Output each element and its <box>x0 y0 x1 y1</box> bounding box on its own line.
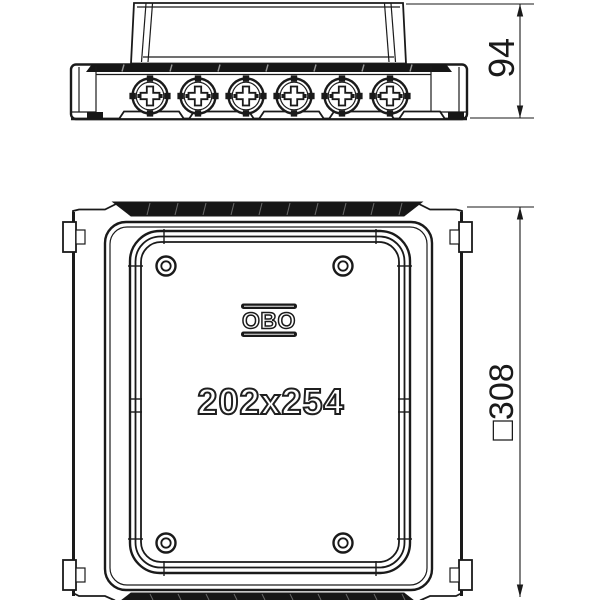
corner-tab-inner <box>76 568 85 582</box>
technical-drawing-page: 94 <box>0 0 600 600</box>
lid-outline <box>131 3 406 64</box>
lid-skirt-band <box>86 64 452 72</box>
dimension-94-label: 94 <box>481 38 522 78</box>
frame-corner <box>73 590 115 600</box>
clamp-band-top <box>113 202 422 216</box>
technical-drawing-canvas: 94 <box>0 0 600 600</box>
corner-tab <box>459 560 472 590</box>
corner-tab <box>63 560 76 590</box>
screw-hole <box>157 534 176 553</box>
foot-tab <box>399 112 445 120</box>
frame-corner <box>420 590 462 600</box>
plan-view: OBO 202x254 □308 <box>63 202 534 600</box>
corner-tab-inner <box>450 230 459 244</box>
corner-tab <box>63 222 76 252</box>
corner-tab-inner <box>450 568 459 582</box>
dimension-308: □308 <box>467 207 534 597</box>
dimension-308-label: □308 <box>483 363 521 440</box>
size-label: 202x254 <box>197 381 344 422</box>
dark-foot <box>448 112 464 119</box>
arrowhead-down <box>517 585 523 598</box>
arrowhead-down <box>517 106 523 119</box>
obo-logo-text: OBO <box>242 308 296 334</box>
screw-hole <box>334 257 353 276</box>
corner-tab-inner <box>76 230 85 244</box>
side-view: 94 <box>71 3 534 119</box>
arrowhead-up <box>517 207 523 220</box>
obo-logo: OBO <box>241 304 297 338</box>
frame-corner <box>418 204 462 216</box>
side-view-lid <box>131 3 406 64</box>
arrowhead-up <box>517 4 523 17</box>
frame-corner <box>73 204 117 216</box>
dark-foot <box>87 112 103 119</box>
corner-tab <box>459 222 472 252</box>
screw-hole <box>334 534 353 553</box>
screw-hole <box>157 257 176 276</box>
